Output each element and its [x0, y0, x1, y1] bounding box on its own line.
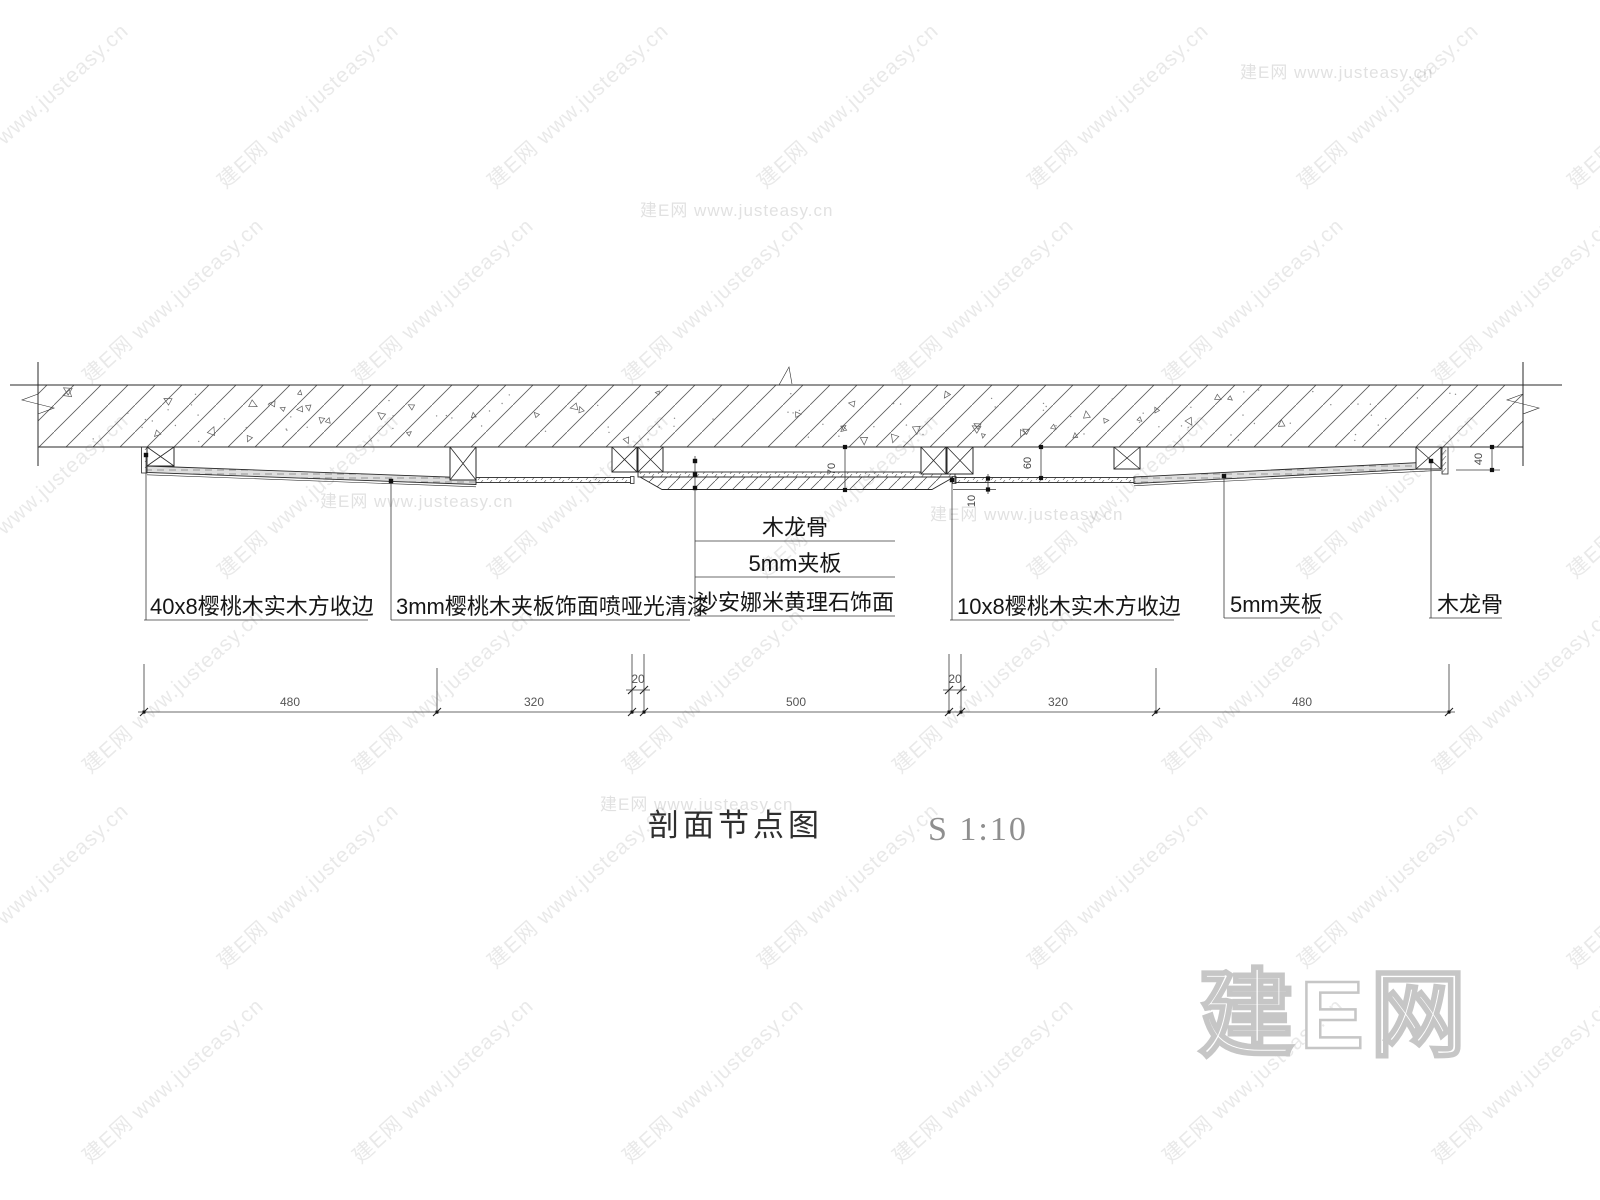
dim-chain-20-right: 20 [948, 672, 962, 686]
dimension-chain: 20 20 480 320 500 320 480 [138, 654, 1455, 716]
drawing-scale: S 1:10 [928, 811, 1028, 848]
dim-chain-480-left: 480 [280, 695, 300, 709]
wood-block [1416, 447, 1441, 469]
wood-block [921, 447, 946, 474]
label-center2: 5mm夹板 [749, 551, 842, 576]
label-center1: 木龙骨 [762, 515, 828, 540]
dim-chain-320-left: 320 [524, 695, 544, 709]
label-center3: 沙安娜米黄理石饰面 [696, 590, 894, 615]
label-right3: 木龙骨 [1437, 592, 1503, 617]
wood-block [947, 447, 973, 474]
break-mark-top [779, 367, 792, 385]
wood-block [450, 447, 476, 480]
dim-70: 70 [826, 463, 838, 475]
wood-block [612, 447, 637, 472]
dim-chain-500: 500 [786, 695, 806, 709]
wood-block [1114, 447, 1140, 469]
dim-chain-20-left: 20 [631, 672, 645, 686]
watermark-logo: 建E网 [1198, 962, 1472, 1069]
wood-block [638, 447, 663, 472]
wood-block [147, 447, 174, 466]
marble-panel [640, 477, 954, 490]
panel-end-cap-left [631, 477, 635, 484]
label-right2: 5mm夹板 [1230, 592, 1323, 617]
drawing-title-block: 剖面节点图 S 1:10 [648, 808, 1028, 848]
pocket-plywood [638, 472, 955, 477]
ceiling-assembly [142, 447, 1449, 490]
edge-trim-strip-right [1442, 447, 1448, 474]
dim-10: 10 [966, 495, 978, 507]
flat-panel-left [476, 478, 633, 483]
label-right1: 10x8樱桃木实木方收边 [957, 594, 1181, 619]
section-detail-drawing: 40x8樱桃木实木方收边 3mm樱桃木夹板饰面喷哑光清漆 木龙骨 5mm夹板 沙… [0, 0, 1600, 1200]
dim-chain-320-right: 320 [1048, 695, 1068, 709]
sloped-plywood-panel-left [147, 466, 476, 485]
dim-40: 40 [1473, 453, 1485, 465]
dim-60: 60 [1022, 457, 1034, 469]
label-left1: 40x8樱桃木实木方收边 [150, 594, 374, 619]
concrete-slab [10, 362, 1562, 466]
drawing-title: 剖面节点图 [648, 808, 823, 843]
drawing-canvas: 建E网 www.justeasy.cn建E网 www.justeasy.cn建E… [0, 0, 1600, 1200]
dim-chain-480-right: 480 [1292, 695, 1312, 709]
label-left2: 3mm樱桃木夹板饰面喷哑光清漆 [396, 594, 709, 619]
flat-panel-right [955, 478, 1137, 483]
